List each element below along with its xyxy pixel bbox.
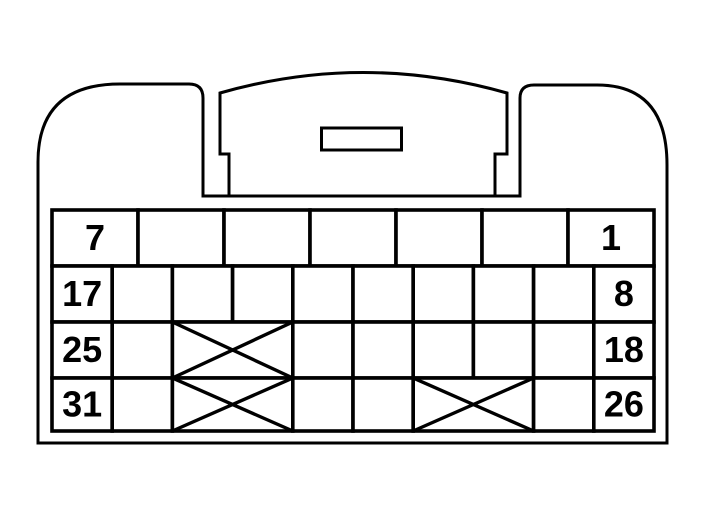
pin-cell [413,266,473,322]
pin-cell [233,266,293,322]
pin-number-7: 7 [85,217,105,258]
pin-cell [112,322,172,378]
pin-cell [112,378,172,431]
pin-cell [310,210,396,266]
pin-number-26: 26 [604,384,644,425]
pin-cell [534,266,594,322]
pin-number-8: 8 [614,273,634,314]
pin-cell [353,266,413,322]
pin-cell [482,210,568,266]
pin-cell [112,266,172,322]
pin-cell [138,210,224,266]
pin-cell [473,266,533,322]
pin-number-31: 31 [62,384,102,425]
pin-cell [293,322,353,378]
pin-number-18: 18 [604,329,644,370]
connector-diagram: 7117825183126 [0,0,705,521]
connector-diagram-svg: 7117825183126 [0,0,705,521]
pin-cell [473,322,533,378]
pin-cell [534,378,594,431]
pin-cell [293,266,353,322]
pin-cell [353,378,413,431]
pin-number-1: 1 [601,217,621,258]
pin-cell [224,210,310,266]
pin-grid: 7117825183126 [52,210,654,431]
pin-cell [353,322,413,378]
pin-number-25: 25 [62,329,102,370]
pin-cell [172,266,232,322]
pin-number-17: 17 [62,273,102,314]
latch-slot [322,128,402,150]
pin-cell [396,210,482,266]
pin-cell [293,378,353,431]
pin-cell [413,322,473,378]
pin-cell [534,322,594,378]
